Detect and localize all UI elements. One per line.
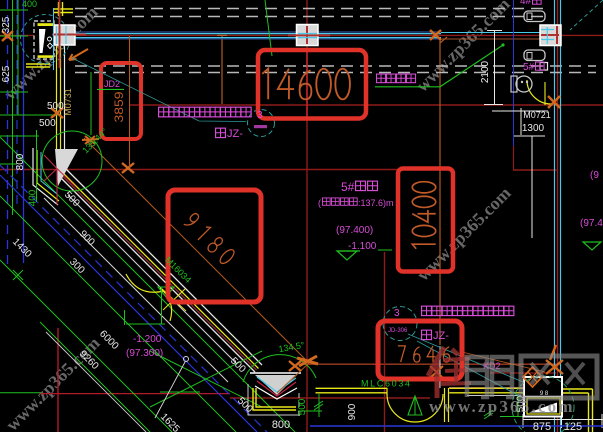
svg-text:400: 400 (28, 189, 39, 206)
svg-text:3: 3 (257, 110, 263, 121)
svg-text:500: 500 (39, 118, 56, 129)
svg-text:875: 875 (533, 421, 551, 432)
svg-text:325: 325 (1, 16, 12, 33)
svg-text:-1.200: -1.200 (133, 334, 162, 345)
svg-text:(97.4: (97.4 (580, 218, 603, 229)
svg-text:4#: 4# (520, 0, 532, 7)
svg-text:JZ-: JZ- (227, 128, 243, 140)
svg-text:2100: 2100 (480, 60, 491, 83)
svg-text::137.6)m: :137.6)m (358, 198, 394, 208)
svg-text:625: 625 (1, 65, 12, 82)
svg-text:JZ-: JZ- (433, 330, 449, 342)
svg-text:900: 900 (347, 403, 358, 420)
svg-text:(9: (9 (590, 170, 599, 181)
svg-text:400: 400 (22, 0, 37, 9)
svg-text:(: ( (318, 198, 321, 208)
svg-text:M0721: M0721 (523, 110, 551, 120)
svg-text:MLC6034: MLC6034 (361, 379, 410, 389)
svg-text:3859: 3859 (114, 92, 126, 123)
svg-text:500: 500 (297, 398, 308, 415)
svg-text:125: 125 (564, 421, 582, 432)
svg-text:500: 500 (47, 101, 64, 112)
svg-text:5#: 5# (523, 62, 535, 73)
svg-text:800: 800 (15, 153, 26, 170)
svg-text:M0731: M0731 (63, 88, 73, 116)
svg-text:800: 800 (272, 419, 290, 431)
svg-text:www.zp365.com: www.zp365.com (429, 397, 575, 416)
svg-text:-1.100: -1.100 (348, 241, 377, 252)
svg-text:5#: 5# (341, 180, 355, 194)
svg-text:3: 3 (394, 308, 400, 319)
svg-text:1300: 1300 (522, 123, 545, 134)
svg-text:JD-306: JD-306 (388, 328, 408, 334)
svg-text:(97.300): (97.300) (126, 348, 163, 359)
svg-text:(97.400): (97.400) (336, 225, 373, 236)
